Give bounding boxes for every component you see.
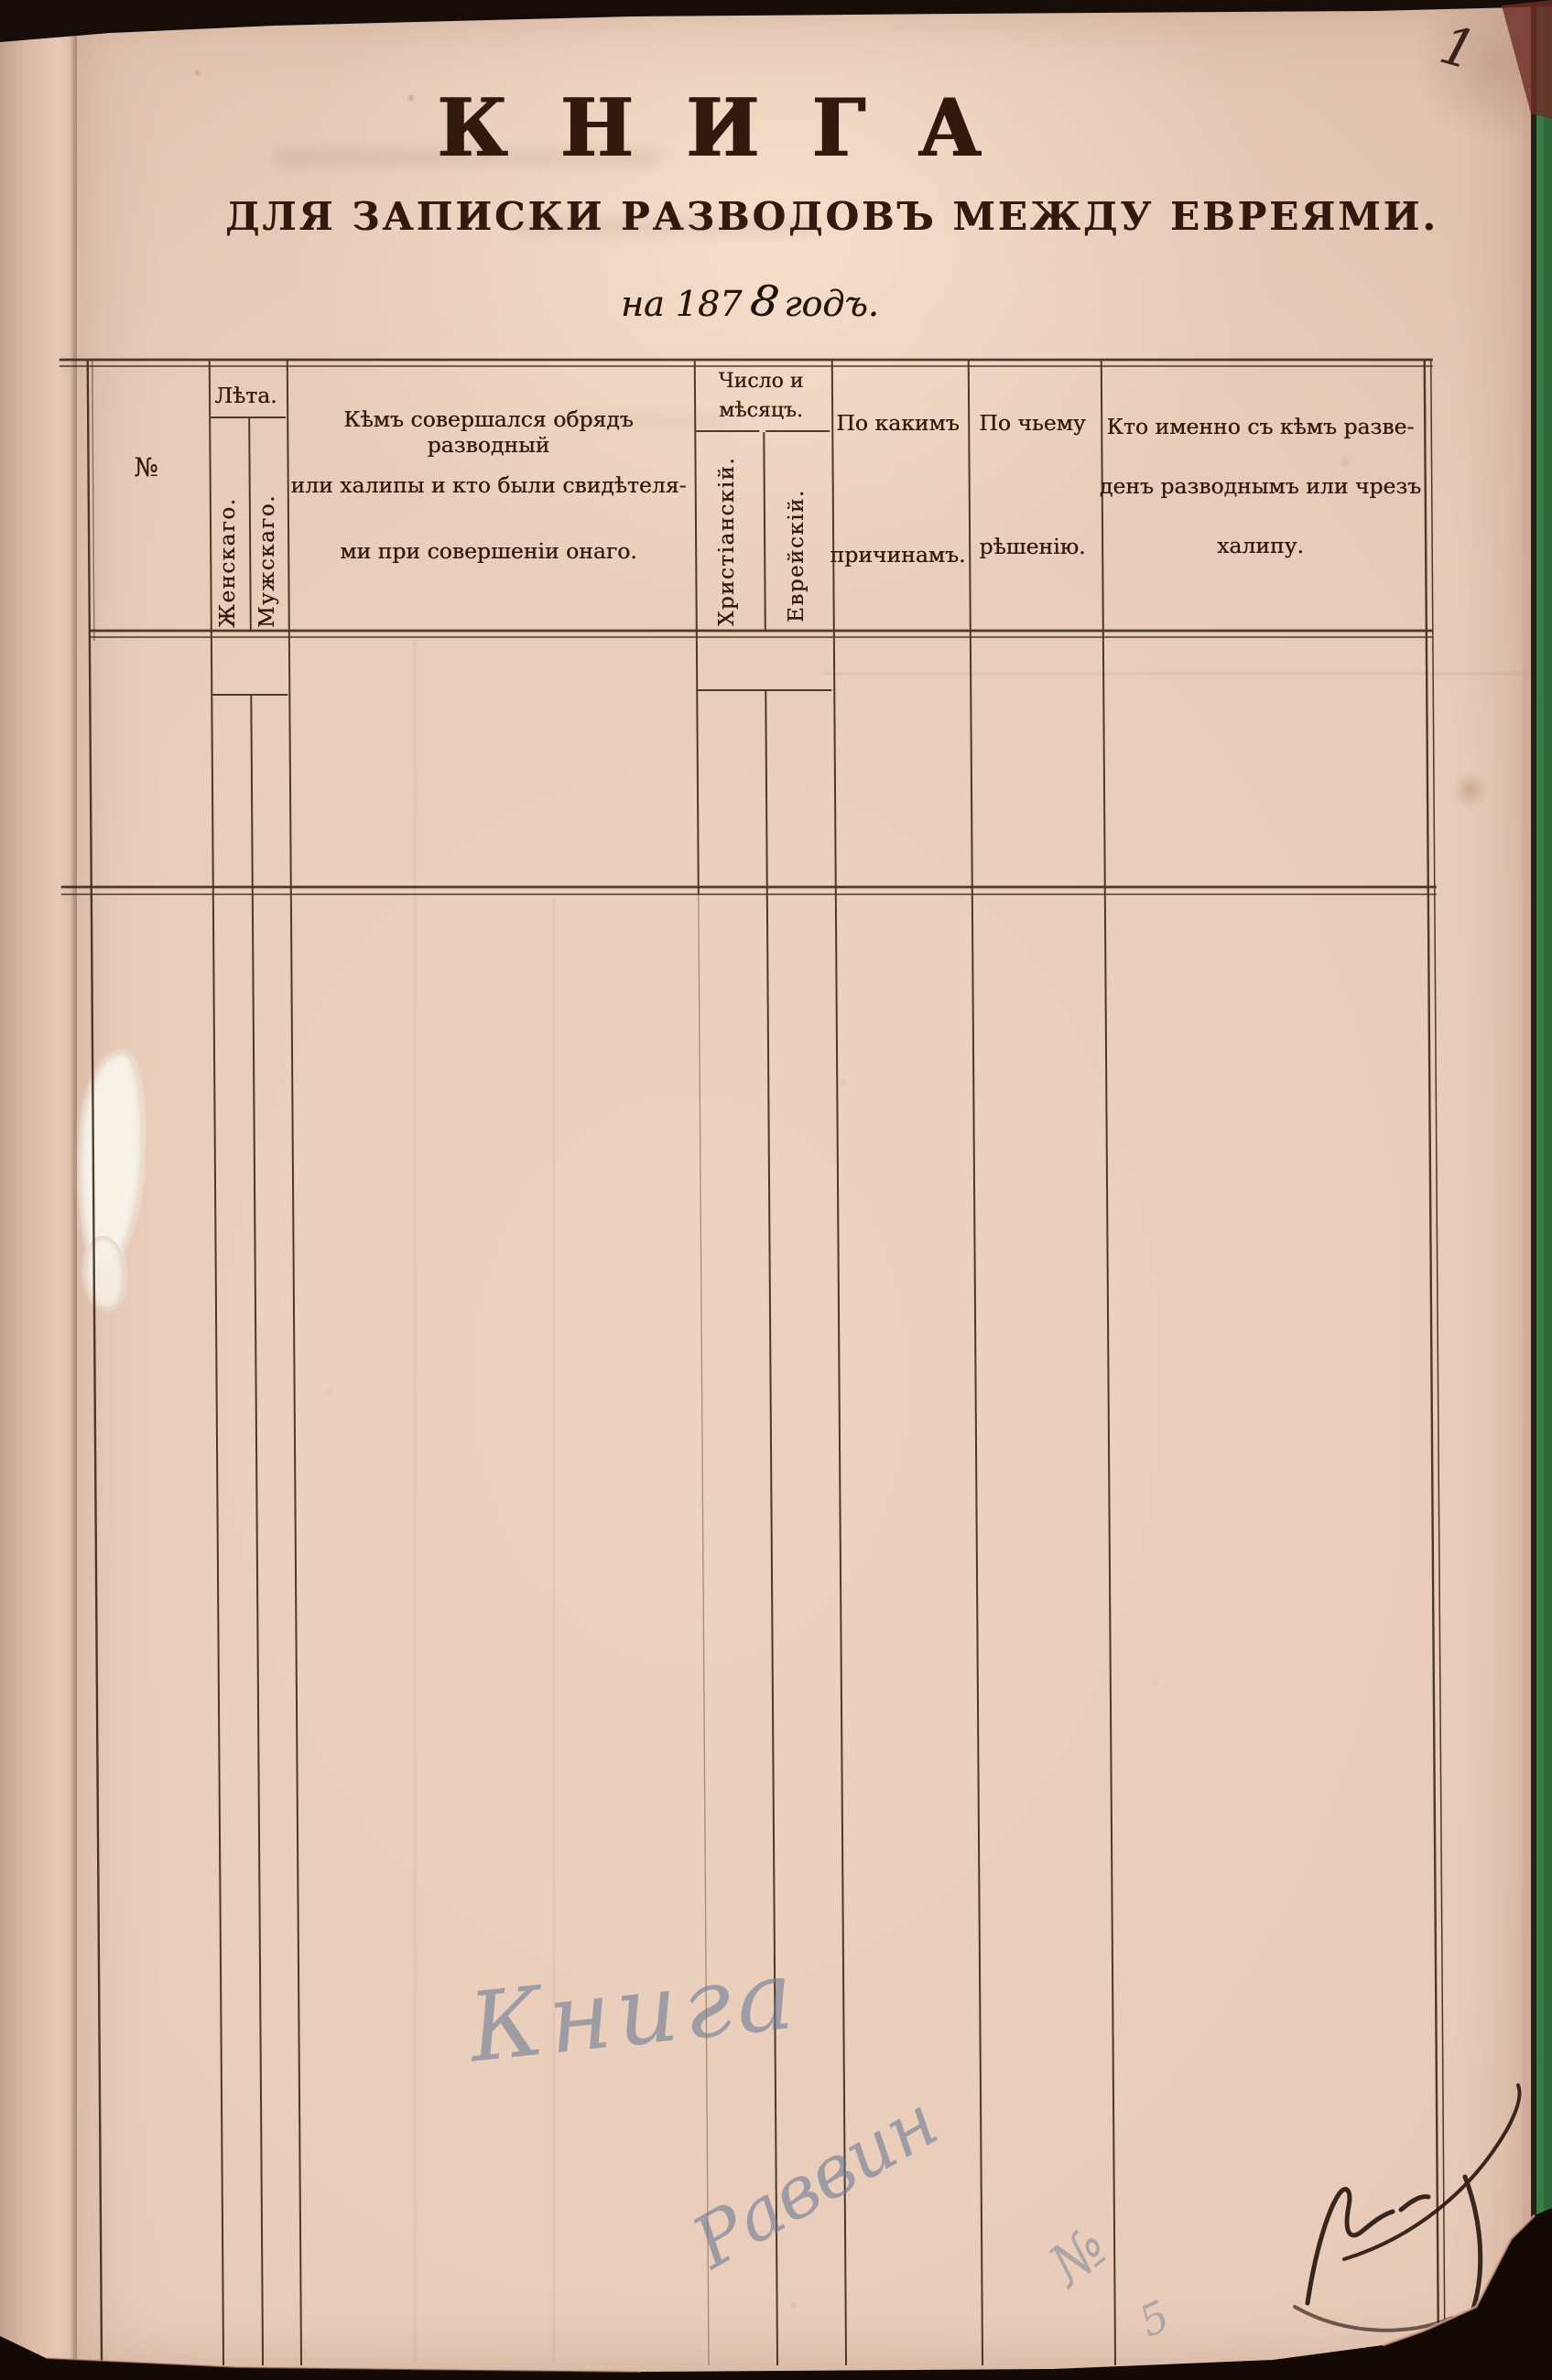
scanned-page: КНИГА ДЛЯ ЗАПИСКИ РАЗВОДОВЪ МЕЖДУ ЕВРЕЯМ… (0, 0, 1552, 2380)
page-edges (0, 0, 1552, 2380)
page-edges-and-ink (0, 0, 1552, 2380)
